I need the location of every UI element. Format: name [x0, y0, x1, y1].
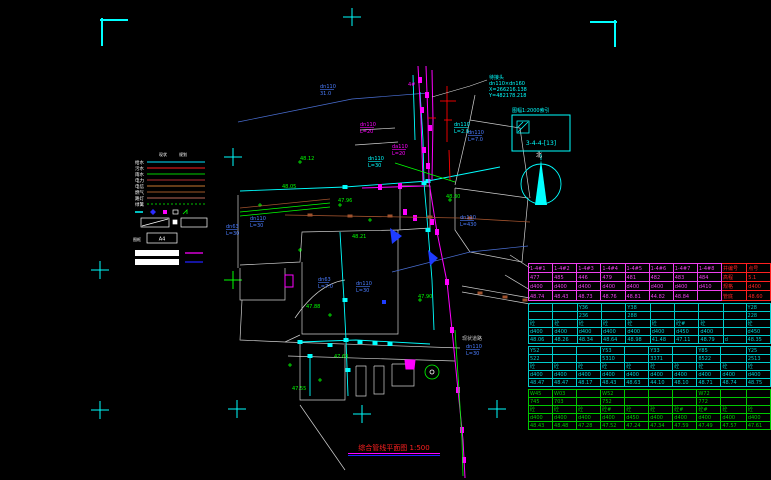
table-cell: 砼: [577, 363, 601, 371]
table-cell: 砼: [746, 406, 770, 414]
table-cell: 477: [529, 273, 553, 282]
legend-frame-a4: 图框 A4: [133, 233, 177, 243]
table-cell: 砼: [529, 363, 553, 371]
table-cell: [723, 320, 746, 328]
map-label: da110: [392, 144, 408, 150]
building-outlines: [238, 95, 530, 470]
map-label-value: 31.0: [320, 91, 331, 97]
map-label-value: L=30: [226, 231, 239, 237]
table-cell: [577, 390, 601, 398]
table-cell: 48.43: [553, 291, 577, 301]
table-cell: 47.57: [721, 422, 746, 430]
drawing-title: 综合管线平面图 1:500: [348, 444, 440, 452]
table-cell: [721, 390, 746, 398]
pipe-table-block-3: Y52Y53Y33Y85Y255225310337185222513砼砼砼砼砼砼…: [528, 346, 771, 387]
map-label-value: L=2.0: [454, 129, 469, 135]
pipe-table-block-1: 1-4#11-4#21-4#31-4#41-4#51-4#61-4#71-4#8…: [528, 263, 771, 301]
table-cell: d400: [721, 371, 746, 379]
table-cell: [675, 312, 699, 320]
table-cell: [553, 312, 577, 320]
table-cell: d400: [529, 328, 553, 336]
legend-scale-bars: [135, 250, 203, 265]
table-cell: 砼: [649, 406, 673, 414]
table-cell: 48.43: [601, 379, 625, 387]
table-cell: 1-4#2: [553, 264, 577, 273]
table-cell: [529, 312, 553, 320]
table-cell: d400: [697, 371, 721, 379]
chamber-symbol-icon: [163, 210, 167, 214]
table-cell: d400: [673, 282, 697, 291]
table-cell: 1-4#5: [625, 264, 649, 273]
table-cell: 44.82: [649, 291, 673, 301]
table-cell: 砼: [649, 363, 673, 371]
legend-frame-box-label: 图框: [133, 236, 141, 242]
table-cell: d400: [601, 414, 625, 422]
table-cell: 砼: [625, 363, 649, 371]
table-cell: 482: [649, 273, 673, 282]
table-cell: 砼: [553, 320, 577, 328]
table-cell: 高程: [722, 273, 747, 282]
table-cell: 1-4#1: [529, 264, 553, 273]
index-box-label: 图幅1:2000索引: [512, 107, 550, 114]
table-cell: 48.34: [577, 336, 601, 344]
table-cell: 2513: [746, 355, 770, 363]
table-cell: 1-4#7: [673, 264, 697, 273]
table-cell: [721, 347, 746, 355]
table-cell: 砼: [577, 320, 601, 328]
table-cell: [625, 347, 649, 355]
table-cell: 48.63: [625, 379, 649, 387]
map-label-value: L=7.0: [468, 137, 483, 143]
table-cell: [673, 398, 697, 406]
table-cell: 砼: [721, 363, 746, 371]
table-cell: d450: [675, 328, 699, 336]
junction-coord-y: Y=482178.218: [488, 93, 526, 99]
legend: 现状 规划 给水污水雨水电力电信燃气路灯绿篱 图框 A4: [133, 151, 207, 265]
table-cell: d400: [601, 282, 625, 291]
table-cell: 48.74: [529, 291, 553, 301]
table-cell: Y52: [529, 347, 553, 355]
table-cell: [699, 312, 723, 320]
table-cell: 47.34: [649, 422, 673, 430]
table-cell: d400: [650, 328, 674, 336]
table-cell: d400: [553, 414, 577, 422]
blue-structures: [382, 228, 438, 304]
table-cell: d400: [673, 414, 697, 422]
sheet-corner-top-left: [100, 18, 128, 46]
table-cell: 48.98: [626, 336, 650, 344]
table-cell: [625, 398, 649, 406]
pipe-data-table: 1-4#11-4#21-4#31-4#41-4#51-4#61-4#71-4#8…: [528, 263, 771, 432]
index-box-code: 3-4-4-[13]: [526, 140, 556, 147]
table-cell: [746, 390, 770, 398]
table-cell: 砼: [625, 406, 649, 414]
table-cell: 41.48: [650, 336, 674, 344]
table-cell: 485: [553, 273, 577, 282]
table-cell: [577, 355, 601, 363]
table-cell: 规格: [722, 282, 747, 291]
table-cell: d: [723, 336, 746, 344]
table-cell: Y53: [601, 347, 625, 355]
table-cell: 481: [625, 273, 649, 282]
map-label: 48.21: [352, 234, 366, 240]
table-cell: 砼#: [601, 406, 625, 414]
map-label: 47.88: [306, 304, 320, 310]
table-cell: 228: [746, 312, 770, 320]
table-cell: d400: [529, 282, 553, 291]
map-label: 47.90: [418, 294, 432, 300]
legend-header-planned: 规划: [179, 151, 187, 157]
map-label: dn110: [468, 130, 484, 136]
table-cell: [723, 304, 746, 312]
table-cell: Y33: [649, 347, 673, 355]
table-cell: [723, 312, 746, 320]
table-cell: 8522: [697, 355, 721, 363]
map-label: dn63: [226, 224, 239, 230]
table-cell: d400: [577, 414, 601, 422]
map-label-value: L=20: [360, 129, 373, 135]
table-cell: 1-4#3: [577, 264, 601, 273]
junction-annotation: 待接头 dn110×dn160 X=266216.138 Y=482178.21…: [432, 74, 527, 99]
table-cell: d400: [699, 328, 723, 336]
map-label: 48.05: [282, 184, 296, 190]
table-cell: [721, 398, 746, 406]
junction-note-line1: 待接头: [489, 74, 504, 81]
hatched-square-icon: [517, 121, 529, 133]
table-cell: 48.64: [602, 336, 626, 344]
table-cell: d400: [625, 371, 649, 379]
table-cell: d400: [553, 282, 577, 291]
table-cell: [650, 312, 674, 320]
table-cell: [625, 390, 649, 398]
table-cell: [721, 355, 746, 363]
table-cell: d400: [529, 414, 553, 422]
legend-row-label: 路灯: [135, 195, 144, 202]
table-cell: 48.17: [577, 379, 601, 387]
telecom-chamber-blobs: [308, 214, 528, 302]
map-label: 47.96: [338, 198, 352, 204]
table-cell: d400: [577, 371, 601, 379]
legend-row-label: 电信: [135, 183, 144, 190]
table-cell: 砼#: [673, 406, 697, 414]
table-cell: 772: [697, 398, 721, 406]
table-cell: 砼: [697, 363, 721, 371]
table-cell: 砼: [746, 363, 770, 371]
table-cell: 砼: [673, 363, 697, 371]
bend-symbol-icon: [183, 210, 187, 214]
table-cell: d400: [649, 371, 673, 379]
table-cell: [697, 291, 721, 301]
table-cell: 703: [553, 398, 577, 406]
green-point-symbols: [258, 160, 452, 382]
table-cell: 5.1: [747, 273, 771, 282]
table-cell: [675, 304, 699, 312]
legend-frames: [141, 218, 207, 227]
table-cell: 479: [601, 273, 625, 282]
table-cell: d400: [649, 282, 673, 291]
table-cell: Y38: [626, 304, 650, 312]
map-label: dn110: [320, 84, 336, 90]
pipe-fitting-blobs: [378, 77, 466, 463]
map-label: dn110: [356, 281, 372, 287]
table-cell: 522: [529, 355, 553, 363]
legend-row-label: 污水: [135, 165, 144, 172]
table-cell: [553, 347, 577, 355]
table-cell: d400: [746, 371, 770, 379]
leader-diagonals: [238, 93, 528, 272]
map-label: dn110: [360, 122, 376, 128]
table-cell: 47.28: [577, 422, 601, 430]
legend-symbols: [135, 209, 187, 215]
table-cell: 砼: [699, 320, 723, 328]
north-label: 北: [536, 151, 542, 159]
title-underline-blue: [348, 455, 440, 456]
table-cell: [723, 328, 746, 336]
map-label: 47.55: [292, 386, 306, 392]
table-cell: 砼: [626, 320, 650, 328]
pipe-table-block-2: Y36Y38Y28236288228砼砼砼砼砼砼砼#砼砼d400d400d400…: [528, 303, 771, 344]
table-cell: 点号: [747, 264, 771, 273]
table-cell: 47.24: [625, 422, 649, 430]
table-cell: 砼#: [675, 320, 699, 328]
table-cell: 48.47: [553, 379, 577, 387]
table-cell: 47.49: [697, 422, 721, 430]
legend-a4-label: A4: [159, 237, 166, 243]
table-cell: 236: [577, 312, 601, 320]
table-cell: 1-4#6: [649, 264, 673, 273]
table-cell: [673, 390, 697, 398]
table-cell: 47.52: [601, 422, 625, 430]
table-cell: [553, 355, 577, 363]
table-cell: 5310: [601, 355, 625, 363]
table-cell: 砼: [746, 320, 770, 328]
table-cell: [673, 355, 697, 363]
table-cell: Y25: [746, 347, 770, 355]
table-cell: 47.59: [673, 422, 697, 430]
table-cell: 砼: [601, 363, 625, 371]
table-cell: [699, 304, 723, 312]
map-label-value: L=430: [460, 222, 477, 228]
table-cell: 48.47: [529, 379, 553, 387]
map-label: 47.63: [334, 354, 348, 360]
table-cell: 砼: [529, 320, 553, 328]
table-cell: 砼: [650, 320, 674, 328]
table-cell: 48.81: [625, 291, 649, 301]
table-cell: 48.79: [699, 336, 723, 344]
table-cell: 47.11: [675, 336, 699, 344]
map-label: dn63: [318, 277, 331, 283]
table-cell: 44.10: [649, 379, 673, 387]
map-label-value: L=30: [466, 351, 479, 357]
table-cell: 48.26: [553, 336, 577, 344]
greenery-lines: [240, 163, 463, 476]
legend-row-label: 绿篱: [135, 201, 144, 208]
table-cell: 井编号: [722, 264, 747, 273]
table-cell: [649, 390, 673, 398]
table-cell: 48.75: [746, 379, 770, 387]
legend-row-label: 电力: [135, 177, 144, 184]
table-cell: d400: [553, 328, 577, 336]
map-label-value: L=30: [250, 223, 263, 229]
table-cell: 745: [529, 398, 553, 406]
table-cell: 3371: [649, 355, 673, 363]
table-cell: d450: [746, 328, 770, 336]
legend-header-existing: 现状: [159, 151, 167, 157]
telecom-lines: [240, 199, 530, 222]
table-cell: 47.61: [746, 422, 770, 430]
table-cell: 48.43: [529, 422, 553, 430]
table-cell: 1-4#4: [601, 264, 625, 273]
legend-row-label: 给水: [135, 159, 144, 166]
manhole-symbol-icon: [173, 210, 178, 214]
table-cell: 砼: [553, 406, 577, 414]
map-label-value: L=20: [392, 151, 405, 157]
table-cell: d400: [625, 282, 649, 291]
table-cell: [602, 312, 626, 320]
legend-row-label: 燃气: [135, 189, 144, 196]
table-cell: d400: [553, 371, 577, 379]
map-label: dn110: [454, 122, 470, 128]
table-cell: d400: [626, 328, 650, 336]
table-cell: [602, 304, 626, 312]
table-cell: d400: [601, 371, 625, 379]
table-cell: 48.71: [697, 379, 721, 387]
pipe-dimension-labels: dn11031.0dn110L=7.0dn110L=430dn63L=30dn1…: [226, 82, 484, 392]
map-label: 现状道路: [462, 335, 482, 342]
table-cell: 446: [577, 273, 601, 282]
map-label-value: L=30: [368, 163, 381, 169]
table-cell: [673, 347, 697, 355]
table-cell: 48.73: [577, 291, 601, 301]
table-cell: Y36: [577, 304, 601, 312]
map-label: 48.12: [300, 156, 314, 162]
table-cell: 484: [697, 273, 721, 282]
pipe-table-block-4: W45W03W52W72745703752772砼砼砼砼#砼砼砼#砼#砼砼d40…: [528, 389, 771, 430]
table-cell: d400: [747, 282, 771, 291]
table-cell: 砼#: [697, 406, 721, 414]
table-cell: d400: [529, 371, 553, 379]
table-cell: d410: [697, 282, 721, 291]
map-label: dn110: [460, 215, 476, 221]
table-cell: 砼: [721, 406, 746, 414]
table-cell: 48.06: [529, 336, 553, 344]
map-label: dn110: [250, 216, 266, 222]
map-label: 4#: [408, 82, 415, 88]
title-underline-magenta: [348, 453, 440, 454]
table-cell: W52: [601, 390, 625, 398]
table-cell: d400: [649, 414, 673, 422]
valve-symbol-icon: [150, 209, 156, 215]
table-cell: d450: [625, 414, 649, 422]
sheet-corner-top-right: [590, 20, 617, 47]
map-label: dn110: [466, 344, 482, 350]
table-cell: Y28: [746, 304, 770, 312]
table-cell: [650, 304, 674, 312]
table-cell: d400: [577, 328, 601, 336]
table-cell: W03: [553, 390, 577, 398]
table-cell: Y85: [697, 347, 721, 355]
table-cell: 48.60: [747, 291, 771, 301]
map-label: dn110: [368, 156, 384, 162]
table-cell: 483: [673, 273, 697, 282]
table-cell: [553, 304, 577, 312]
table-cell: 288: [626, 312, 650, 320]
table-cell: 48.74: [721, 379, 746, 387]
table-cell: d400: [602, 328, 626, 336]
table-cell: W45: [529, 390, 553, 398]
table-cell: [649, 398, 673, 406]
table-cell: 48.48: [553, 422, 577, 430]
table-cell: 752: [601, 398, 625, 406]
table-cell: [625, 355, 649, 363]
table-cell: 48.10: [673, 379, 697, 387]
map-label-value: L=7.0: [318, 284, 333, 290]
table-cell: d400: [577, 282, 601, 291]
cad-drawing-canvas[interactable]: 待接头 dn110×dn160 X=266216.138 Y=482178.21…: [0, 0, 771, 480]
table-cell: 48.76: [601, 291, 625, 301]
table-cell: [746, 398, 770, 406]
table-cell: [529, 304, 553, 312]
table-cell: d400: [697, 414, 721, 422]
table-cell: 48.84: [673, 291, 697, 301]
table-cell: 砼: [553, 363, 577, 371]
table-cell: 砼: [529, 406, 553, 414]
map-label: 48.30: [446, 194, 460, 200]
table-cell: 48.35: [746, 336, 770, 344]
table-cell: W72: [697, 390, 721, 398]
legend-rows: 给水污水雨水电力电信燃气路灯绿篱: [135, 159, 205, 208]
table-cell: d400: [746, 414, 770, 422]
table-cell: d400: [721, 414, 746, 422]
table-cell: 砼: [577, 406, 601, 414]
table-cell: 砼: [602, 320, 626, 328]
table-cell: 1-4#8: [697, 264, 721, 273]
legend-row-label: 雨水: [135, 171, 144, 178]
table-cell: d400: [673, 371, 697, 379]
sheet-index-box[interactable]: 图幅1:2000索引 3-4-4-[13]: [512, 107, 570, 151]
table-cell: 管底: [722, 291, 747, 301]
map-label-value: L=30: [356, 288, 369, 294]
table-cell: [577, 398, 601, 406]
table-cell: [577, 347, 601, 355]
